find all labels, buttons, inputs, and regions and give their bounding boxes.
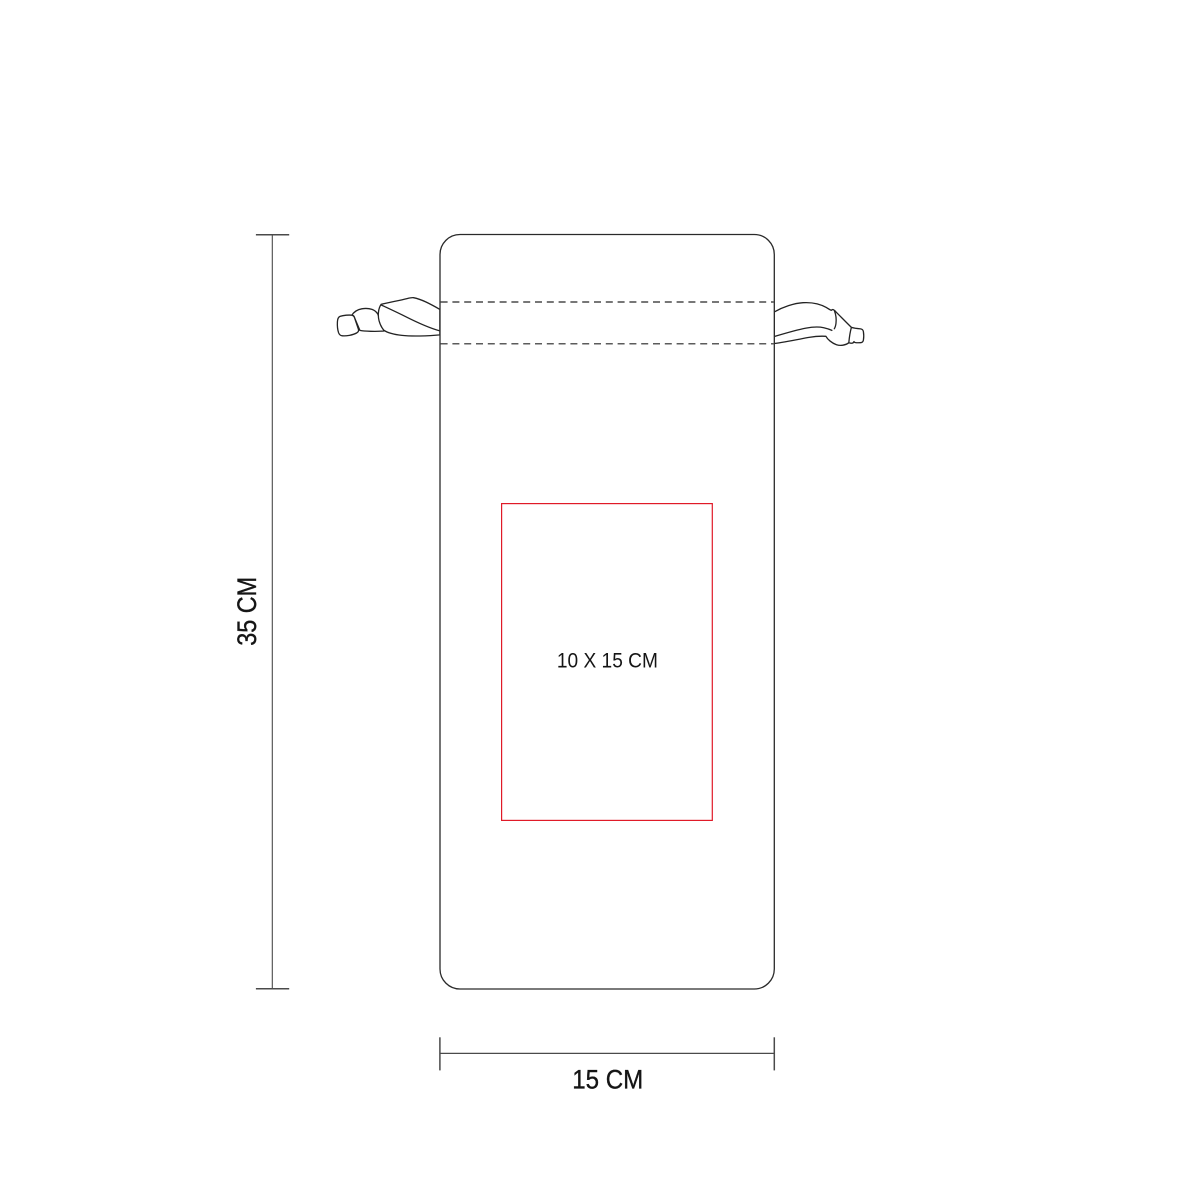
svg-text:15 CM: 15 CM — [572, 1065, 643, 1095]
svg-text:10 X 15 CM: 10 X 15 CM — [557, 649, 658, 673]
svg-text:35 CM: 35 CM — [232, 577, 262, 646]
